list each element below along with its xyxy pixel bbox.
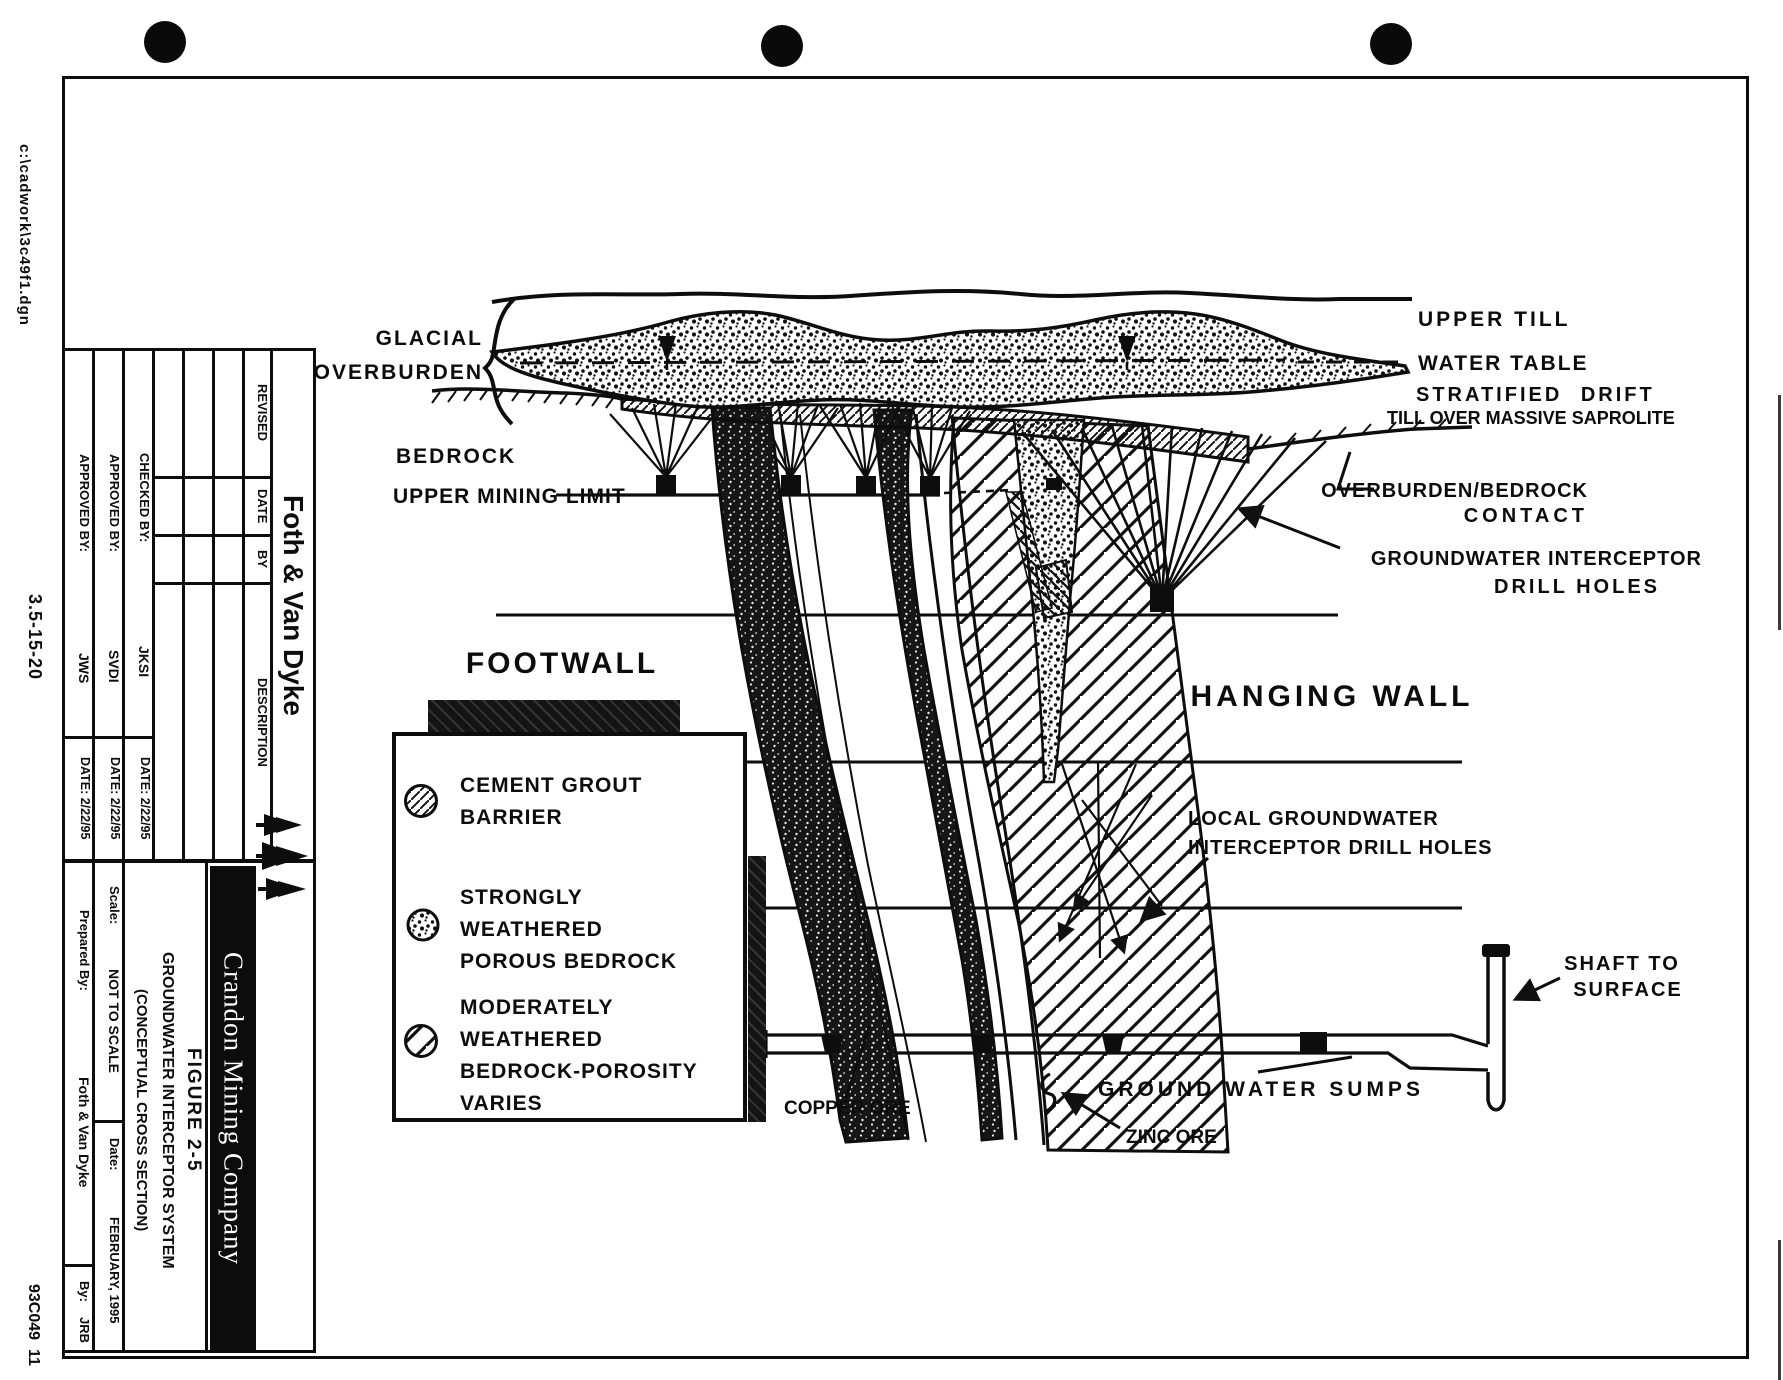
legend-shadow-top (428, 700, 680, 733)
sumps-leader (1258, 1057, 1352, 1072)
gw-interceptor-arrow (1240, 509, 1340, 548)
label-stratified-drift: STRATIFIED DRIFT (1416, 384, 1655, 406)
legend-item-label: CEMENT GROUT (460, 770, 642, 802)
ore-zone (712, 408, 1228, 1152)
label-upper-mining-limit: UPPER MINING LIMIT (393, 485, 626, 508)
stratified-drift-band (492, 312, 1408, 407)
label-shaft: SHAFT TO (1564, 953, 1680, 975)
label-gw-interceptor: DRILL HOLES (1494, 576, 1660, 598)
label-ob-contact: OVERBURDEN/BEDROCK (1321, 480, 1588, 502)
legend-item-label: BARRIER (460, 802, 563, 834)
label-local-gw: LOCAL GROUNDWATER (1188, 808, 1439, 830)
legend-item-label: STRONGLY (460, 882, 583, 914)
legend-item-label: VARIES (460, 1088, 543, 1120)
label-overburden: OVERBURDEN (314, 361, 483, 384)
label-upper-till: UPPER TILL (1418, 308, 1571, 331)
label-zinc-ore: ZINC ORE (1126, 1127, 1217, 1148)
legend-icon-strongly-weathered (404, 906, 442, 944)
label-gw-interceptor: GROUNDWATER INTERCEPTOR (1371, 548, 1702, 570)
legend-item-label: WEATHERED (460, 1024, 603, 1056)
label-local-gw: INTERCEPTOR DRILL HOLES (1188, 837, 1493, 859)
shaft-arrow (1516, 978, 1560, 999)
label-water-table: WATER TABLE (1418, 352, 1589, 375)
shaft (1482, 944, 1510, 1110)
label-footwall: FOOTWALL (466, 647, 658, 680)
legend-icon-cement-grout (402, 782, 440, 820)
legend-item-label: MODERATELY (460, 992, 614, 1024)
cross-section-diagram: GLACIAL OVERBURDEN BEDROCK UPPER MINING … (0, 0, 1783, 1380)
legend-item-label: BEDROCK-POROSITY (460, 1056, 698, 1088)
ground-surface-line (492, 291, 1412, 302)
label-ob-contact: CONTACT (1464, 505, 1588, 527)
legend-item-label: WEATHERED (460, 914, 603, 946)
label-shaft: SURFACE (1573, 979, 1683, 1001)
label-bedrock: BEDROCK (396, 445, 516, 468)
legend-shadow-right (748, 856, 766, 1122)
label-hanging-wall: HANGING WALL (1191, 680, 1474, 713)
scanned-drawing-page: { "margin": { "file_path": "c:\\cadwork\… (0, 0, 1783, 1380)
label-copper-ore: COPPER ORE (784, 1098, 911, 1119)
label-glacial: GLACIAL (376, 327, 483, 350)
label-till-saprolite: TILL OVER MASSIVE SAPROLITE (1387, 408, 1675, 428)
legend-icon-moderately-weathered (402, 1022, 440, 1060)
legend-item-label: POROUS BEDROCK (460, 946, 677, 978)
label-sumps: GROUND WATER SUMPS (1098, 1078, 1424, 1101)
